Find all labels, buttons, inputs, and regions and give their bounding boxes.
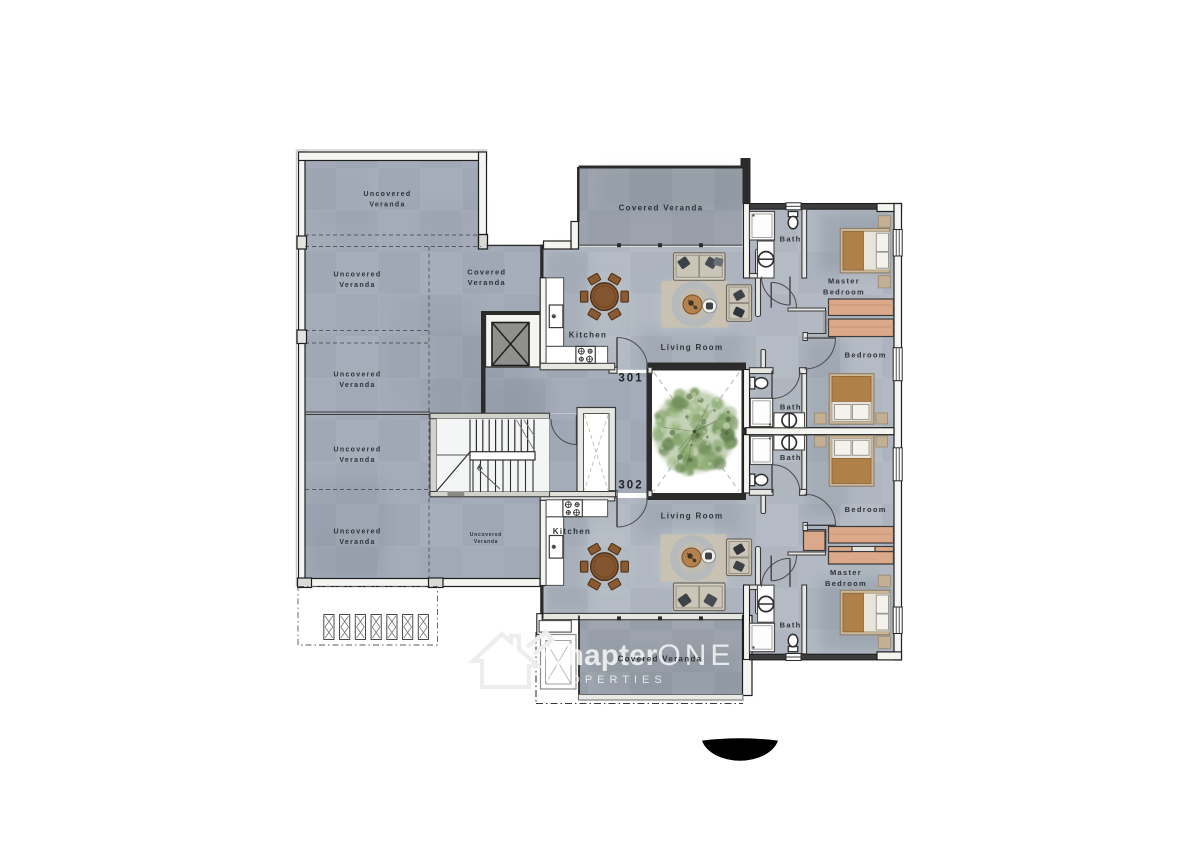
svg-text:Veranda: Veranda — [339, 382, 375, 389]
svg-text:Veranda: Veranda — [339, 457, 375, 464]
svg-text:Master: Master — [830, 568, 862, 577]
svg-text:Bath: Bath — [780, 403, 802, 412]
svg-text:PROPERTIES: PROPERTIES — [546, 674, 667, 686]
svg-text:Veranda: Veranda — [339, 539, 375, 546]
svg-text:302: 302 — [618, 480, 643, 492]
svg-text:301: 301 — [618, 373, 643, 385]
svg-text:Veranda: Veranda — [369, 202, 405, 209]
svg-text:Bath: Bath — [780, 453, 802, 462]
svg-text:Uncovered: Uncovered — [364, 191, 412, 198]
svg-text:Uncovered: Uncovered — [334, 372, 382, 379]
svg-text:Kitchen: Kitchen — [553, 527, 591, 536]
svg-text:Master: Master — [828, 277, 860, 286]
svg-text:Bath: Bath — [780, 235, 802, 244]
svg-text:Veranda: Veranda — [339, 282, 375, 289]
svg-text:Bedroom: Bedroom — [825, 579, 867, 588]
svg-text:Veranda: Veranda — [474, 539, 498, 545]
svg-text:Uncovered: Uncovered — [334, 529, 382, 536]
svg-text:Covered: Covered — [467, 268, 506, 277]
svg-text:Bedroom: Bedroom — [845, 505, 887, 514]
svg-text:Bath: Bath — [780, 621, 802, 630]
svg-text:Living Room: Living Room — [661, 343, 724, 352]
svg-text:Covered Veranda: Covered Veranda — [619, 204, 704, 213]
svg-text:Uncovered: Uncovered — [334, 447, 382, 454]
svg-text:Kitchen: Kitchen — [569, 331, 607, 340]
svg-text:Uncovered: Uncovered — [470, 532, 502, 538]
svg-text:Living Room: Living Room — [661, 512, 724, 521]
svg-text:Bedroom: Bedroom — [823, 288, 865, 297]
svg-text:Bedroom: Bedroom — [845, 351, 887, 360]
svg-text:Veranda: Veranda — [468, 278, 506, 287]
svg-text:Covered Veranda: Covered Veranda — [618, 655, 703, 664]
svg-text:Uncovered: Uncovered — [334, 272, 382, 279]
